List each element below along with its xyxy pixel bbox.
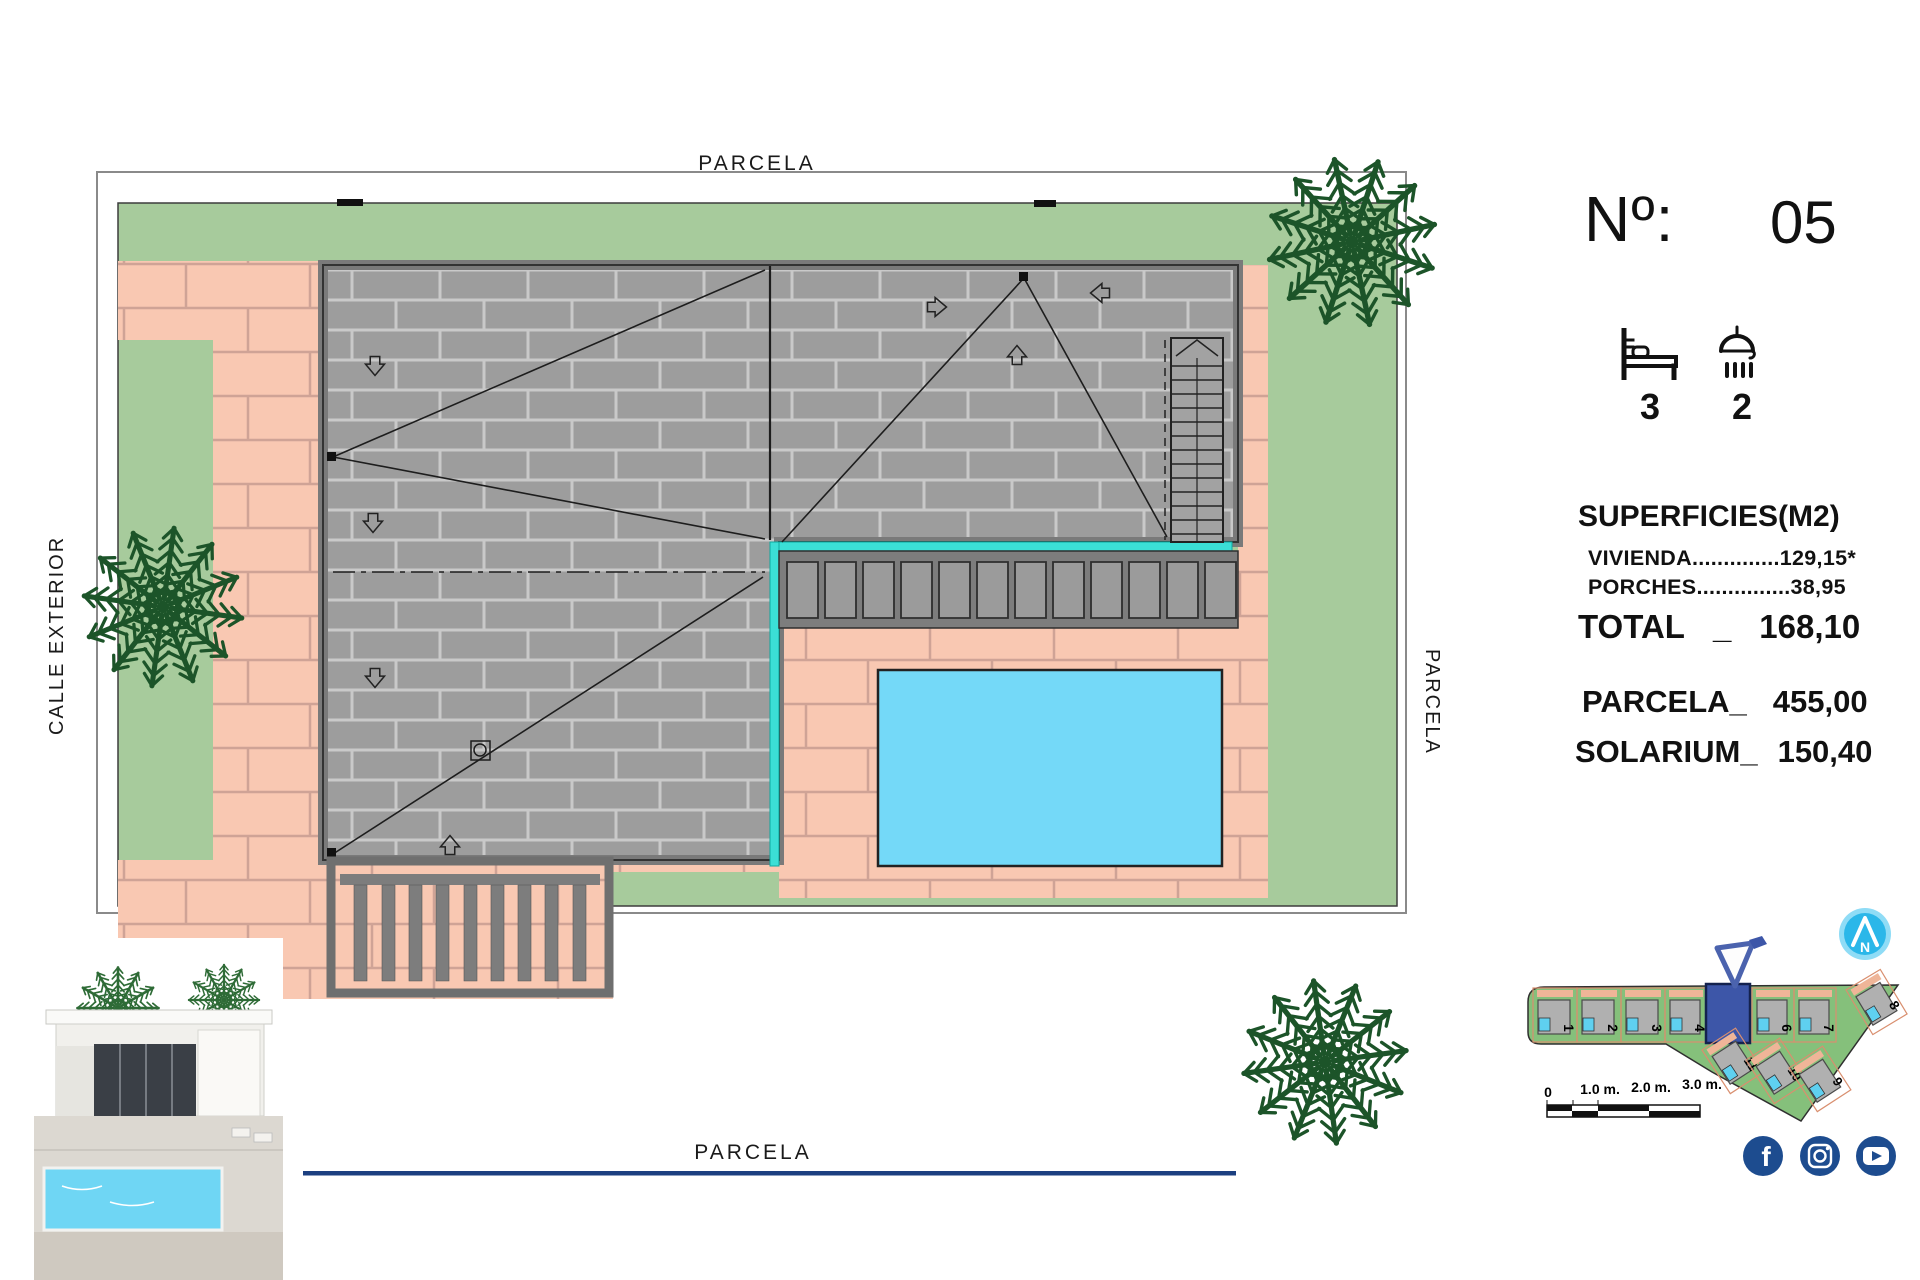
social-icons: f: [1743, 1136, 1896, 1176]
facebook-icon[interactable]: f: [1743, 1136, 1783, 1176]
svg-text:0: 0: [1544, 1084, 1552, 1100]
villa-number-value: 05: [1770, 188, 1837, 257]
minimap-pointer: [1717, 936, 1767, 986]
svg-text:N: N: [1860, 939, 1870, 955]
minimap-highlighted-plot: [1706, 984, 1750, 1043]
scale-bar: 0 1.0 m. 2.0 m. 3.0 m.: [1544, 1076, 1722, 1117]
bed-icon: [1618, 328, 1680, 380]
porch-pergola: [779, 551, 1238, 628]
compass-icon: N: [1839, 908, 1891, 960]
villa-photo: [34, 938, 283, 1280]
surfaces-title: SUPERFICIES(M2): [1578, 500, 1840, 534]
shower-icon: [1714, 324, 1760, 380]
svg-text:6: 6: [1779, 1024, 1794, 1032]
svg-text:3: 3: [1649, 1024, 1664, 1032]
svg-text:1.0 m.: 1.0 m.: [1580, 1081, 1620, 1097]
brochure-page: 1 2 3 4: [0, 0, 1920, 1280]
parcela-label-right: PARCELA: [1420, 632, 1443, 772]
surface-line-porches: PORCHES...............38,95: [1588, 575, 1846, 600]
total-row: TOTAL_168,10: [1578, 608, 1860, 646]
parcela-row: PARCELA_455,00: [1582, 684, 1868, 720]
svg-text:7: 7: [1821, 1024, 1836, 1032]
svg-text:f: f: [1761, 1141, 1771, 1172]
roof-stairs: [1165, 338, 1223, 542]
swimming-pool: [878, 670, 1222, 866]
palm-tree: [1218, 955, 1431, 1168]
bedroom-count: 3: [1640, 386, 1660, 428]
solarium-row: SOLARIUM_150,40: [1575, 734, 1872, 770]
svg-text:2.0 m.: 2.0 m.: [1631, 1079, 1671, 1095]
entrance-pergola-grill: [331, 861, 609, 993]
info-panel: Nº: 05 3 2 SUPERFICIES(M2) VIVIENDA.....…: [1570, 182, 1918, 782]
surface-line-vivienda: VIVIENDA..............129,15*: [1588, 546, 1856, 571]
parcela-label-bottom: PARCELA: [638, 1141, 868, 1165]
svg-text:1: 1: [1561, 1024, 1576, 1032]
calle-exterior-label: CALLE EXTERIOR: [46, 528, 69, 743]
svg-text:3.0 m.: 3.0 m.: [1682, 1076, 1722, 1092]
parcela-label-top: PARCELA: [642, 152, 872, 176]
bathroom-count: 2: [1732, 386, 1752, 428]
villa-number-label: Nº:: [1584, 182, 1674, 256]
youtube-icon[interactable]: [1856, 1136, 1896, 1176]
svg-text:2: 2: [1605, 1024, 1620, 1032]
instagram-icon[interactable]: [1800, 1136, 1840, 1176]
minimap: 1 2 3 4: [1528, 936, 1908, 1121]
footer-divider-line: [303, 1171, 1236, 1176]
